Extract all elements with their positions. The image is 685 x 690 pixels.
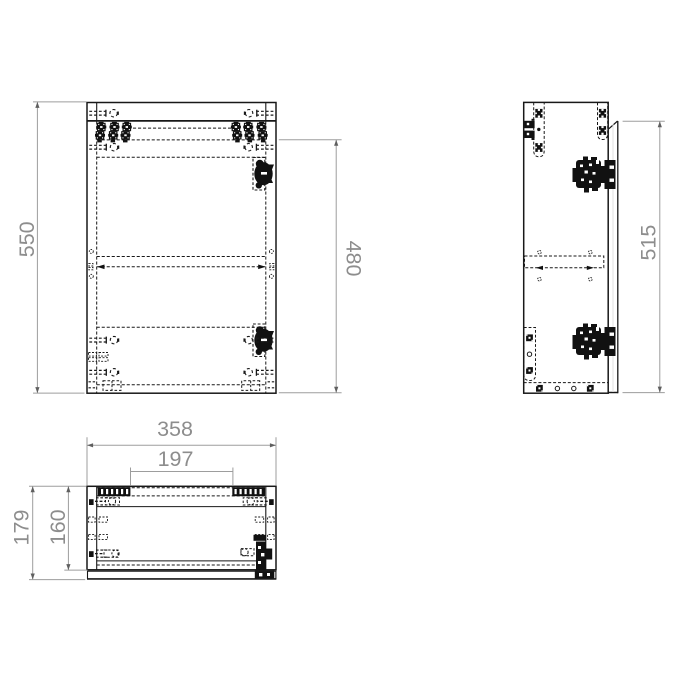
svg-text:179: 179 xyxy=(10,510,34,546)
svg-text:550: 550 xyxy=(15,221,39,257)
svg-text:480: 480 xyxy=(342,241,366,277)
svg-text:160: 160 xyxy=(46,509,70,545)
svg-text:358: 358 xyxy=(157,417,193,441)
svg-text:197: 197 xyxy=(158,447,194,471)
svg-text:515: 515 xyxy=(637,225,661,261)
